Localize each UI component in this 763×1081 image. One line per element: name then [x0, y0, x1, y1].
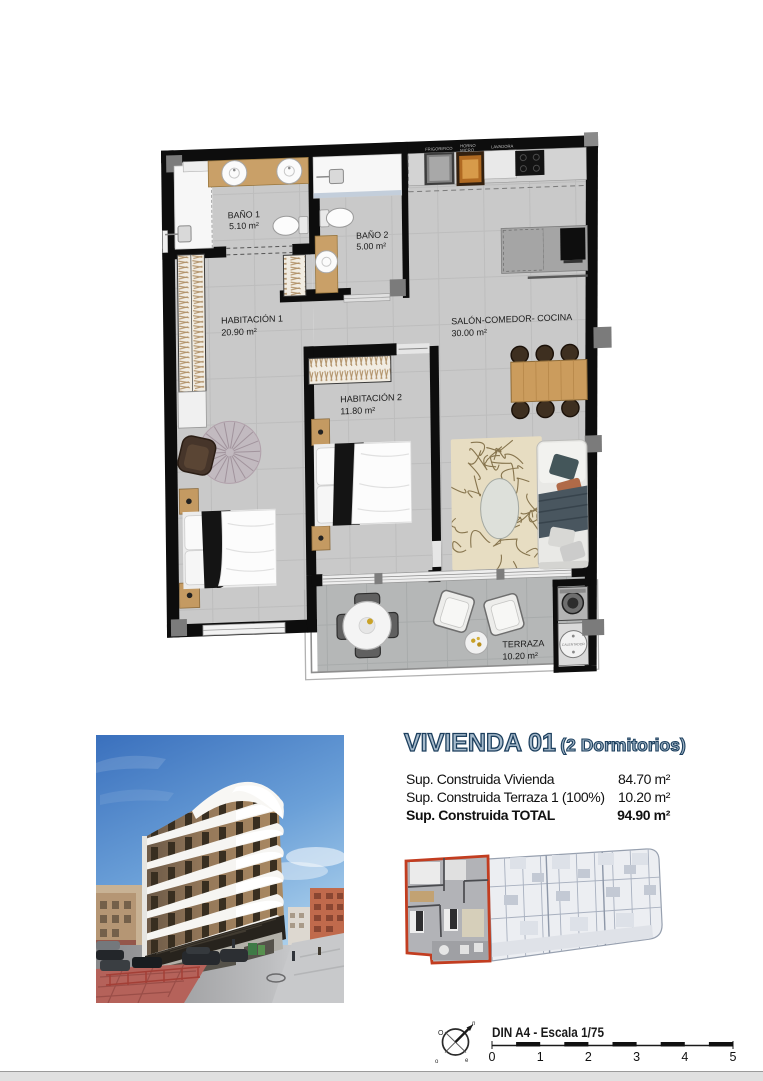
- svg-text:30.00 m²: 30.00 m²: [451, 327, 487, 338]
- svg-text:TERRAZA: TERRAZA: [502, 638, 544, 650]
- svg-text:MICRO: MICRO: [460, 147, 475, 153]
- svg-text:5: 5: [730, 1050, 737, 1064]
- svg-text:BAÑO 2: BAÑO 2: [356, 230, 388, 241]
- svg-text:4: 4: [681, 1050, 688, 1064]
- svg-text:n: n: [472, 1021, 476, 1027]
- svg-text:O: O: [438, 1030, 444, 1037]
- svg-text:20.90 m²: 20.90 m²: [221, 326, 257, 337]
- svg-text:1: 1: [537, 1050, 544, 1064]
- svg-text:5.00 m²: 5.00 m²: [356, 241, 386, 252]
- svg-text:0: 0: [489, 1050, 496, 1064]
- svg-text:LAVADORA: LAVADORA: [491, 144, 513, 150]
- svg-text:2: 2: [585, 1050, 592, 1064]
- svg-text:FRIGORIFICO: FRIGORIFICO: [425, 146, 453, 152]
- svg-text:BAÑO 1: BAÑO 1: [228, 209, 260, 220]
- svg-text:o: o: [435, 1059, 439, 1065]
- svg-text:5.10 m²: 5.10 m²: [229, 220, 259, 231]
- svg-text:11.80 m²: 11.80 m²: [340, 405, 375, 416]
- svg-text:e: e: [465, 1058, 469, 1064]
- svg-text:3: 3: [633, 1050, 640, 1064]
- svg-text:10.20 m²: 10.20 m²: [502, 650, 538, 661]
- svg-text:CALENTADOR: CALENTADOR: [562, 642, 586, 647]
